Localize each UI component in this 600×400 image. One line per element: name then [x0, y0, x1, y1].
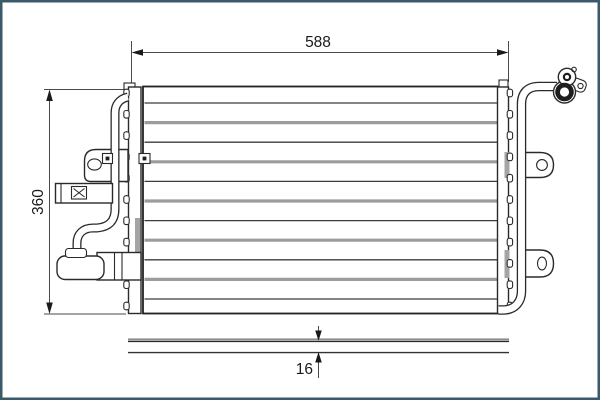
clamp-screw-right: [139, 154, 150, 164]
width-dimension-label: 588: [305, 34, 331, 51]
clamp-screw-left: [103, 154, 113, 164]
depth-dimension-label: 16: [296, 361, 313, 378]
pipe-coupling: [57, 249, 141, 281]
connection-block: [56, 184, 113, 204]
crimp-cap: [66, 249, 87, 258]
mount-tab-upper: [523, 153, 554, 178]
technical-drawing-canvas: 588 360 16: [0, 0, 600, 400]
mount-tab-lower: [523, 250, 554, 277]
hose-crimp: [57, 256, 104, 280]
height-dimension-label: 360: [30, 189, 47, 215]
condenser-core: [143, 87, 498, 314]
